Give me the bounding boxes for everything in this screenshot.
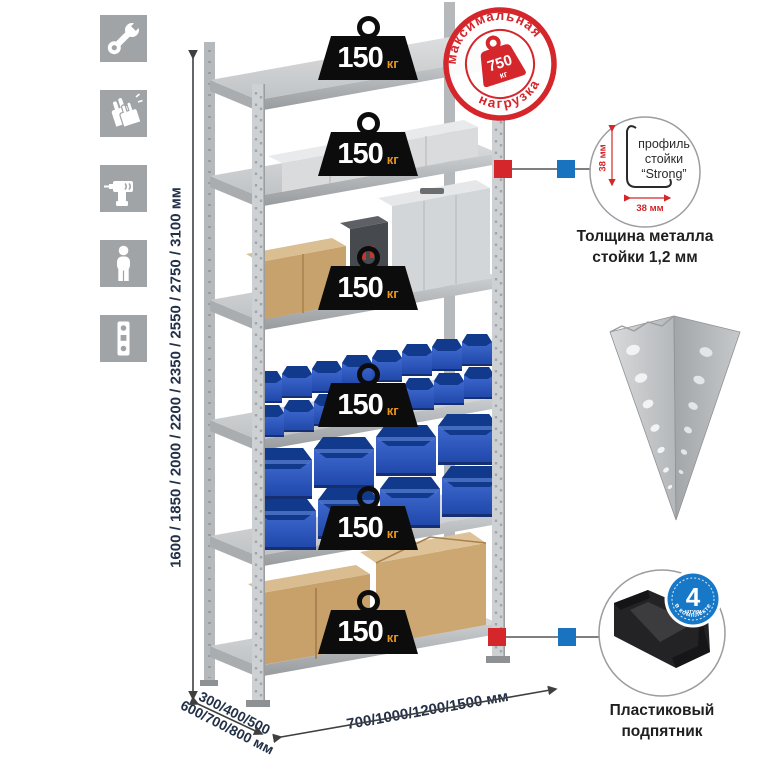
load-value: 150 — [337, 272, 382, 305]
load-unit: кг — [387, 286, 399, 301]
weight-ring-icon — [357, 486, 380, 509]
product-infographic: 38 мм 38 мм профиль стойки “Strong” — [0, 0, 765, 765]
blue-connector-square — [557, 160, 575, 178]
quantity-number: 4 — [686, 582, 701, 612]
connector-foot-callout — [488, 628, 599, 646]
foot-plate — [200, 680, 218, 686]
profile-dim-horizontal: 38 мм — [636, 203, 663, 214]
weight-ring-icon — [357, 246, 380, 269]
load-value: 150 — [337, 138, 382, 171]
profile-label-line2: стойки — [645, 152, 683, 166]
profile-dim-vertical: 38 мм — [598, 144, 609, 171]
plastic-foot-detail: 4 штуки в комплекте — [599, 570, 725, 696]
depth-dimension-line — [198, 704, 262, 734]
foot-plate — [246, 700, 270, 707]
weight-ring-icon — [357, 16, 380, 39]
shelf-load-badge: 150кг — [318, 590, 418, 654]
load-unit: кг — [387, 152, 399, 167]
load-unit: кг — [387, 526, 399, 541]
connector-profile-callout — [494, 160, 590, 178]
load-unit: кг — [387, 56, 399, 71]
weight-ring-icon — [357, 363, 380, 386]
angle-post-image — [610, 316, 740, 520]
profile-label-line3: “Strong” — [641, 167, 686, 181]
shelf-load-badge: 150кг — [318, 363, 418, 427]
load-value: 150 — [337, 42, 382, 75]
weight-ring-icon — [357, 112, 380, 135]
profile-detail-diagram: 38 мм 38 мм профиль стойки “Strong” — [590, 117, 700, 227]
shelf-load-badge: 150кг — [318, 246, 418, 310]
load-unit: кг — [387, 403, 399, 418]
shelf-load-badge: 150кг — [318, 16, 418, 80]
load-value: 150 — [337, 616, 382, 649]
profile-label-line1: профиль — [638, 137, 690, 151]
shelf-load-badge: 150кг — [318, 486, 418, 550]
red-connector-square — [494, 160, 512, 178]
foot-plate — [486, 656, 510, 663]
width-dimension-line — [281, 689, 556, 737]
shelf-load-badge: 150кг — [318, 112, 418, 176]
load-unit: кг — [387, 630, 399, 645]
weight-ring-icon — [357, 590, 380, 613]
blue-connector-square — [558, 628, 576, 646]
red-connector-square — [488, 628, 506, 646]
load-value: 150 — [337, 512, 382, 545]
quantity-badge: 4 штуки в комплекте — [665, 571, 722, 628]
load-value: 150 — [337, 389, 382, 422]
